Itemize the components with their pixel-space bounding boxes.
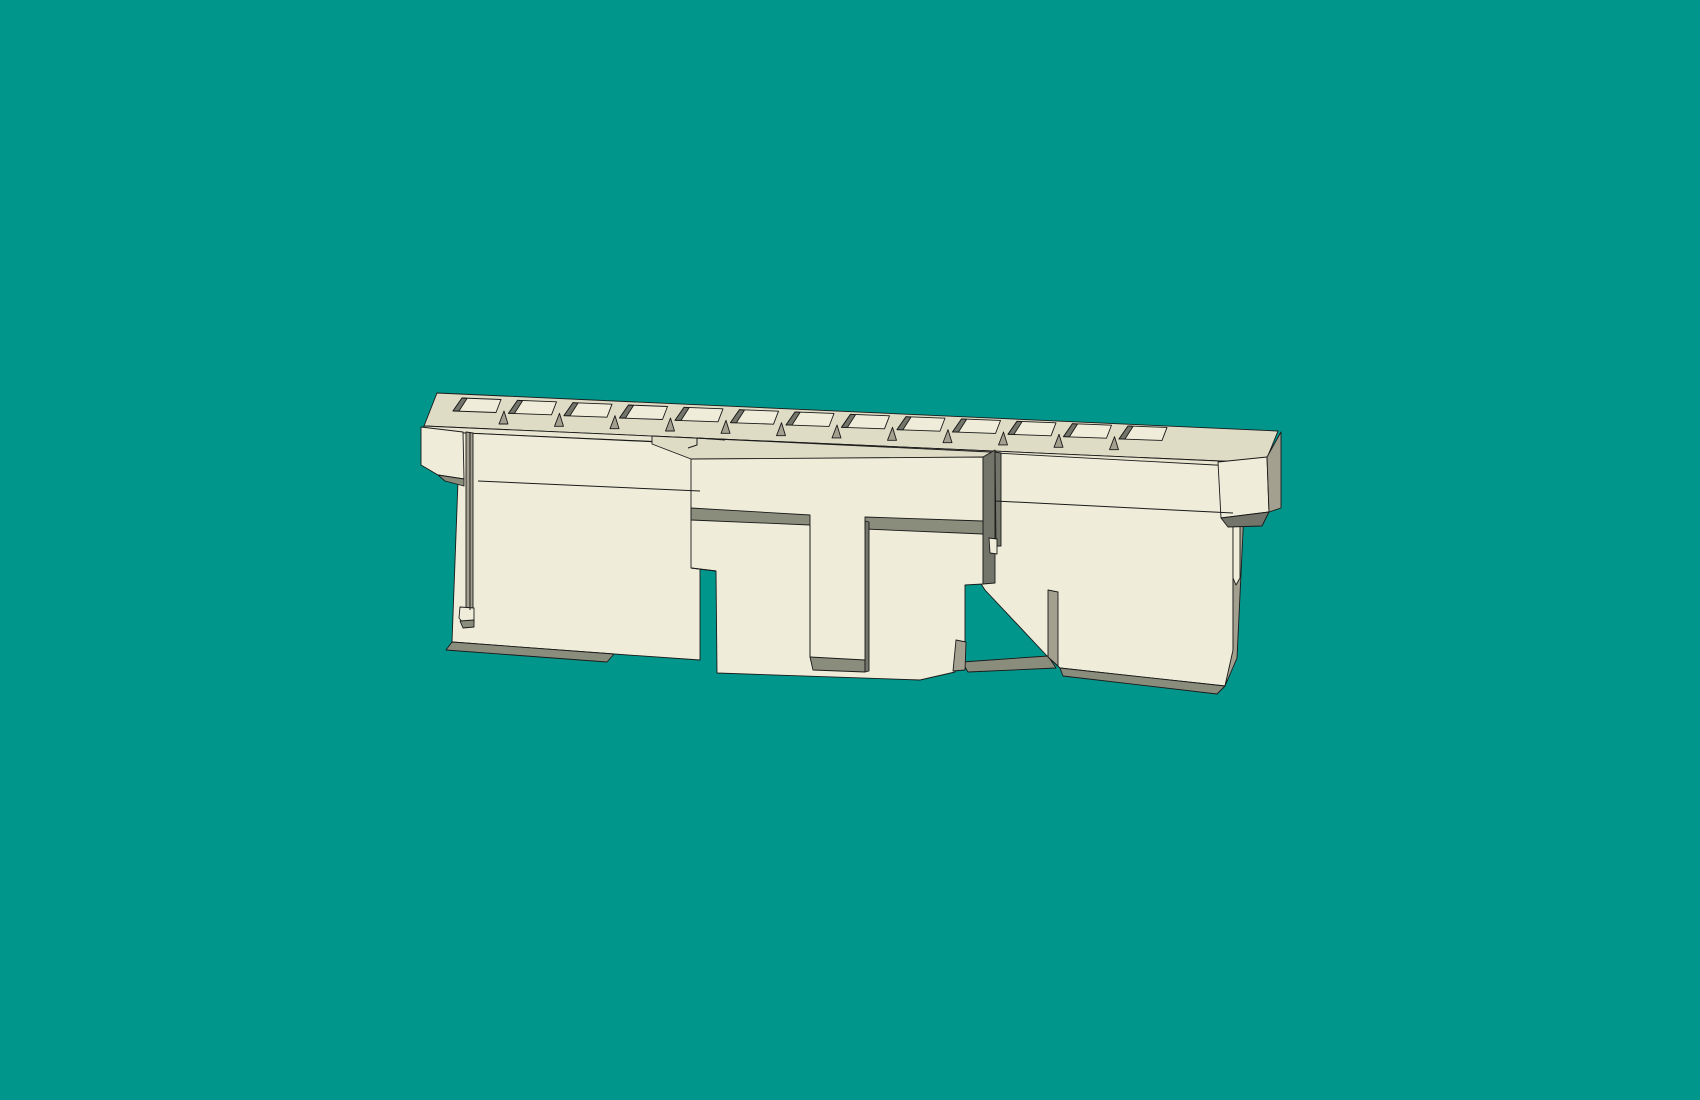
gap-sliver [995,452,1001,546]
gap-nub [989,538,997,554]
latch-cover-face [691,457,983,680]
latch-right-side [983,450,995,584]
left-groove-nub-shadow [460,620,474,628]
cad-viewport[interactable] [0,0,1700,1100]
connector-3d-model [0,0,1700,1100]
right-side-slot [1233,523,1240,585]
latch-stem-right-edge [865,521,869,672]
latch-stem-bottom-groove [810,657,865,672]
right-cap-face [1218,457,1269,518]
right-step-side [1048,590,1058,666]
